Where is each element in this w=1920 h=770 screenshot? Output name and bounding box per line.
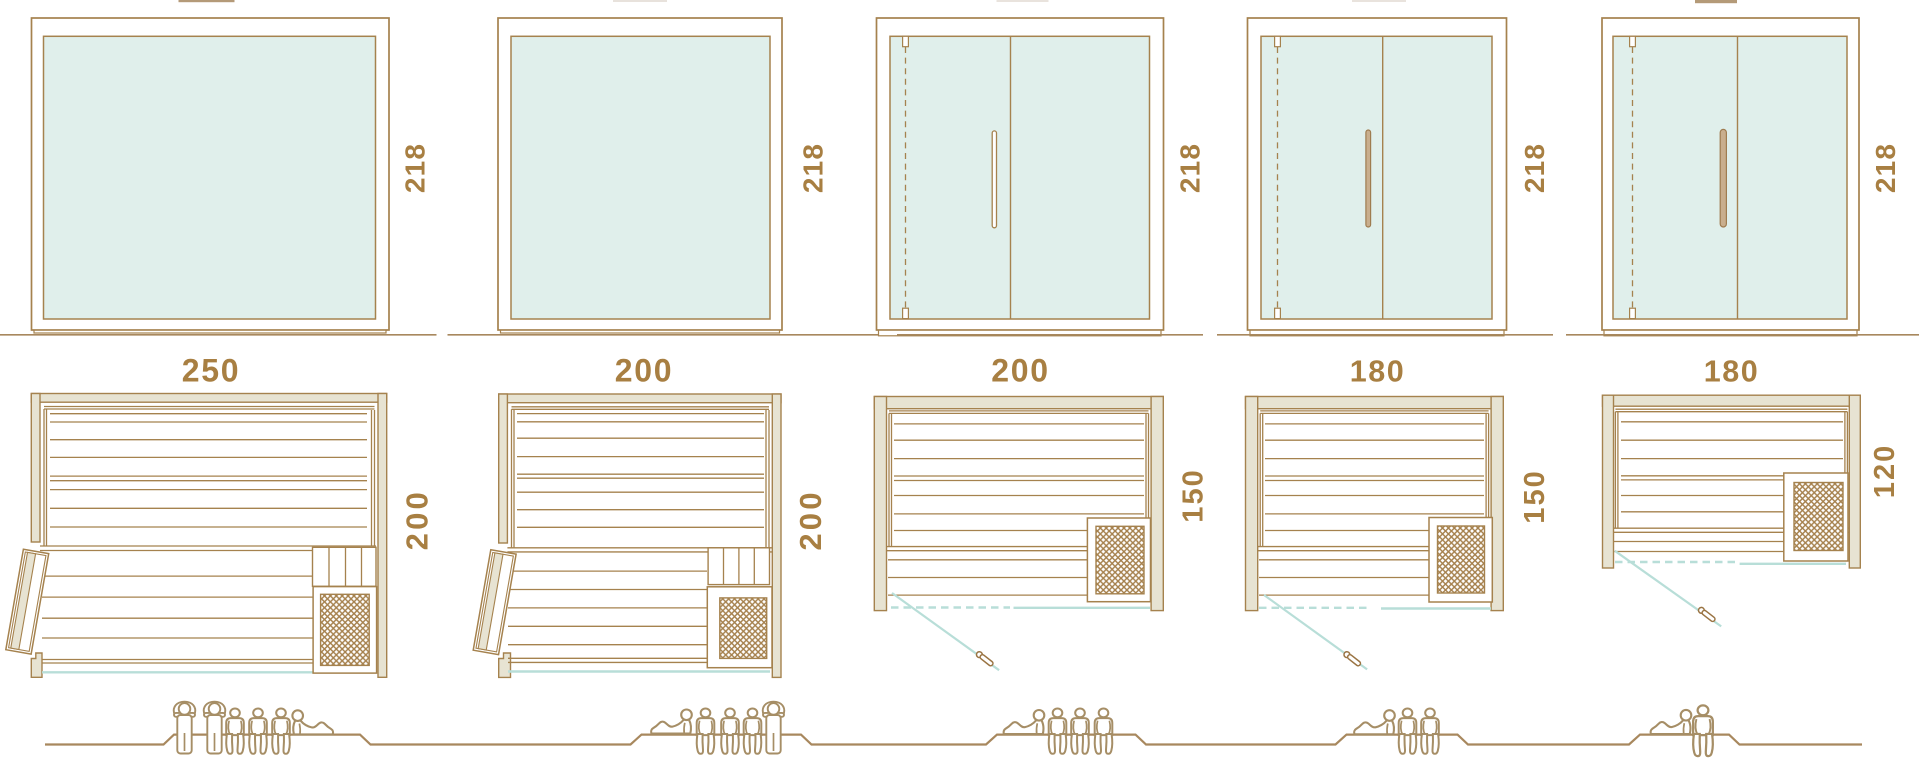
svg-text:150: 150 (1177, 468, 1209, 522)
svg-text:218: 218 (1175, 143, 1206, 193)
svg-text:200: 200 (793, 489, 828, 550)
svg-text:200: 200 (991, 353, 1050, 389)
svg-text:218: 218 (798, 143, 829, 193)
svg-text:200: 200 (400, 489, 435, 550)
svg-text:180: 180 (1704, 355, 1759, 389)
svg-text:218: 218 (400, 143, 431, 193)
svg-text:180: 180 (1350, 355, 1405, 389)
svg-text:120: 120 (1869, 444, 1901, 498)
svg-text:250: 250 (182, 353, 241, 389)
svg-text:200: 200 (615, 353, 674, 389)
svg-text:150: 150 (1519, 469, 1551, 523)
svg-text:218: 218 (1519, 143, 1550, 193)
svg-text:218: 218 (1870, 143, 1901, 193)
